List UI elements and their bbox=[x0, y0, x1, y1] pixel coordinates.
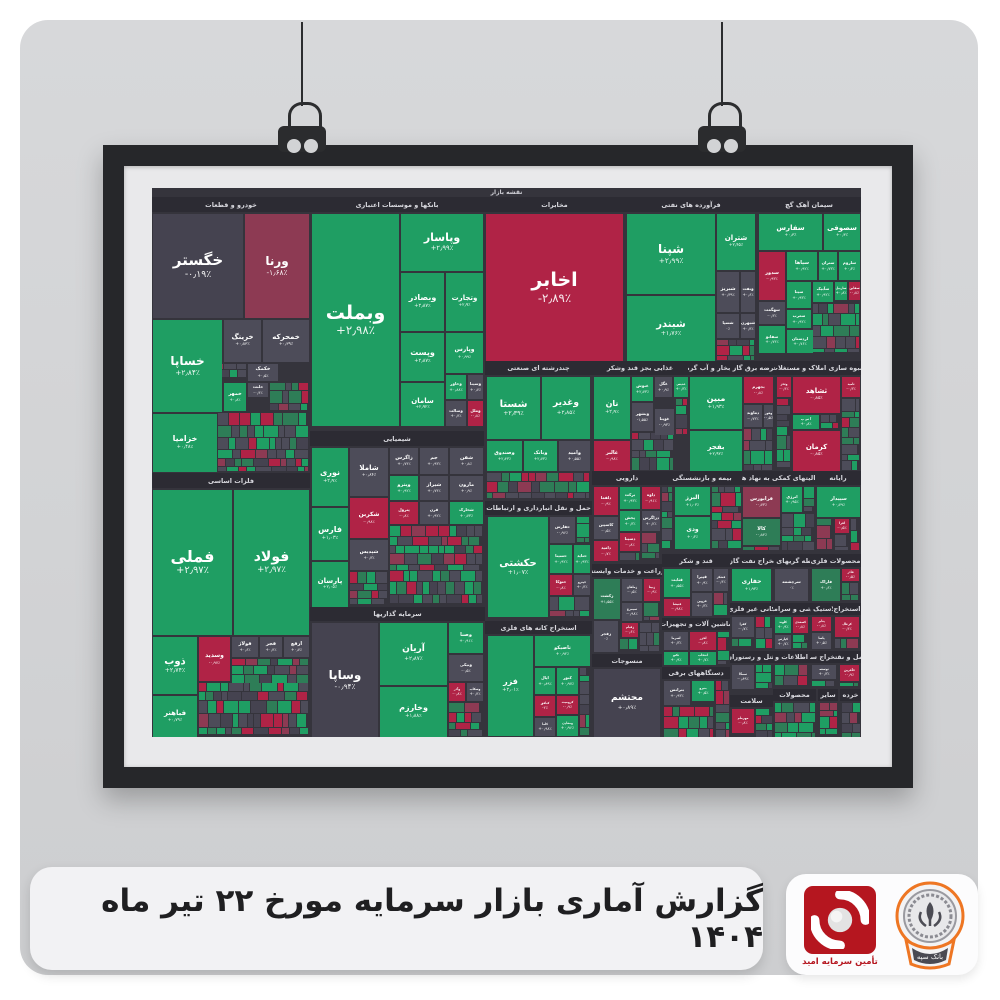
treemap-mini-tile[interactable] bbox=[414, 595, 422, 603]
treemap-mini-tile[interactable] bbox=[842, 418, 849, 427]
treemap-tile[interactable]: خمحرکه+۰٫۳۹٪ bbox=[263, 320, 309, 362]
treemap-mini-tile[interactable] bbox=[367, 572, 375, 583]
treemap-mini-tile[interactable] bbox=[793, 635, 804, 642]
treemap-mini-tile[interactable] bbox=[487, 493, 492, 498]
treemap-mini-tile[interactable] bbox=[733, 529, 741, 540]
treemap-mini-tile[interactable] bbox=[834, 326, 849, 336]
treemap-mini-tile[interactable] bbox=[834, 711, 837, 716]
treemap-tile[interactable]: اخابر-۲٫۸۹٪ bbox=[486, 214, 623, 361]
treemap-tile[interactable]: زبینا-۰٫۹٪ bbox=[644, 579, 660, 601]
treemap-mini-tile[interactable] bbox=[850, 418, 859, 427]
treemap-tile[interactable]: کبافق-۲٪ bbox=[535, 696, 555, 716]
treemap-mini-tile[interactable] bbox=[577, 538, 584, 542]
treemap-tile[interactable]: خزامیا+۰٫۴۸٪ bbox=[153, 414, 217, 472]
treemap-mini-tile[interactable] bbox=[848, 455, 859, 460]
treemap-tile[interactable]: سمگا-۰٫۸۹٪ bbox=[732, 665, 754, 689]
treemap-mini-tile[interactable] bbox=[269, 692, 284, 700]
treemap-tile[interactable]: قنیشا-۰٫۹۸٪ bbox=[664, 599, 690, 616]
treemap-tile[interactable]: شیراز+۰٫۷۴٪ bbox=[420, 476, 448, 500]
treemap-mini-tile[interactable] bbox=[756, 683, 768, 688]
treemap-mini-tile[interactable] bbox=[717, 340, 728, 345]
treemap-mini-tile[interactable] bbox=[812, 733, 815, 737]
treemap-mini-tile[interactable] bbox=[575, 597, 589, 610]
treemap-mini-tile[interactable] bbox=[239, 714, 247, 727]
treemap-mini-tile[interactable] bbox=[662, 529, 672, 540]
treemap-mini-tile[interactable] bbox=[299, 413, 306, 425]
treemap-tile[interactable]: سفانو+۰٫۷۴٪ bbox=[759, 326, 785, 353]
treemap-mini-tile[interactable] bbox=[435, 565, 447, 570]
treemap-mini-tile[interactable] bbox=[650, 458, 656, 470]
treemap-mini-tile[interactable] bbox=[301, 701, 308, 713]
treemap-mini-tile[interactable] bbox=[282, 438, 289, 449]
treemap-tile[interactable]: خساپا+۲٫۸۴٪ bbox=[153, 320, 222, 412]
treemap-tile[interactable]: وپاسار+۲٫۹۹٪ bbox=[401, 214, 483, 271]
treemap-tile[interactable]: زقیام-۰٫۶٪ bbox=[622, 623, 638, 637]
treemap-mini-tile[interactable] bbox=[302, 459, 308, 466]
treemap-mini-tile[interactable] bbox=[401, 526, 411, 536]
treemap-mini-tile[interactable] bbox=[842, 724, 852, 732]
treemap-mini-tile[interactable] bbox=[540, 482, 554, 492]
treemap-tile[interactable]: غویتا-۰٫۹۳٪ bbox=[655, 409, 674, 435]
treemap-mini-tile[interactable] bbox=[716, 730, 725, 737]
treemap-mini-tile[interactable] bbox=[226, 459, 234, 466]
treemap-mini-tile[interactable] bbox=[261, 413, 273, 425]
treemap-mini-tile[interactable] bbox=[657, 451, 670, 457]
treemap-mini-tile[interactable] bbox=[629, 639, 637, 649]
treemap-mini-tile[interactable] bbox=[794, 703, 809, 712]
treemap-mini-tile[interactable] bbox=[242, 728, 253, 734]
treemap-mini-tile[interactable] bbox=[285, 692, 296, 700]
treemap-mini-tile[interactable] bbox=[404, 571, 409, 581]
treemap-mini-tile[interactable] bbox=[242, 459, 253, 466]
treemap-mini-tile[interactable] bbox=[218, 459, 225, 466]
treemap-mini-tile[interactable] bbox=[649, 646, 659, 651]
treemap-mini-tile[interactable] bbox=[472, 713, 481, 722]
treemap-mini-tile[interactable] bbox=[248, 714, 253, 727]
treemap-mini-tile[interactable] bbox=[640, 646, 648, 651]
treemap-mini-tile[interactable] bbox=[813, 337, 826, 348]
treemap-tile[interactable]: شکربن-۰٫۹۸٪ bbox=[350, 498, 388, 538]
treemap-mini-tile[interactable] bbox=[358, 599, 371, 604]
treemap-mini-tile[interactable] bbox=[662, 493, 668, 501]
treemap-mini-tile[interactable] bbox=[756, 709, 769, 715]
treemap-mini-tile[interactable] bbox=[476, 554, 482, 564]
treemap-mini-tile[interactable] bbox=[736, 493, 741, 506]
treemap-mini-tile[interactable] bbox=[469, 595, 476, 603]
treemap-mini-tile[interactable] bbox=[286, 383, 291, 390]
treemap-mini-tile[interactable] bbox=[297, 692, 307, 700]
treemap-tile[interactable]: شپنا+۲٫۹۹٪ bbox=[627, 214, 715, 294]
treemap-mini-tile[interactable] bbox=[409, 565, 419, 570]
treemap-mini-tile[interactable] bbox=[555, 482, 568, 492]
treemap-mini-tile[interactable] bbox=[842, 703, 852, 712]
treemap-tile[interactable]: خمهر+۰٫۸٪ bbox=[224, 383, 246, 411]
treemap-mini-tile[interactable] bbox=[284, 683, 298, 691]
treemap-mini-tile[interactable] bbox=[840, 683, 853, 686]
treemap-tile[interactable]: خلنت-۰٫۴٪ bbox=[248, 383, 268, 397]
treemap-mini-tile[interactable] bbox=[278, 683, 283, 691]
treemap-mini-tile[interactable] bbox=[683, 429, 687, 434]
treemap-mini-tile[interactable] bbox=[813, 314, 822, 325]
treemap-mini-tile[interactable] bbox=[274, 714, 282, 727]
treemap-mini-tile[interactable] bbox=[756, 716, 761, 723]
treemap-mini-tile[interactable] bbox=[735, 487, 740, 492]
treemap-mini-tile[interactable] bbox=[550, 597, 558, 610]
treemap-mini-tile[interactable] bbox=[545, 493, 555, 498]
treemap-mini-tile[interactable] bbox=[441, 571, 449, 581]
treemap-mini-tile[interactable] bbox=[668, 512, 672, 517]
treemap-mini-tile[interactable] bbox=[420, 546, 428, 553]
treemap-mini-tile[interactable] bbox=[718, 632, 729, 637]
treemap-mini-tile[interactable] bbox=[782, 528, 793, 535]
treemap-mini-tile[interactable] bbox=[257, 438, 269, 449]
treemap-tile[interactable]: مارون+۰٫۹٪ bbox=[450, 476, 483, 500]
treemap-mini-tile[interactable] bbox=[642, 533, 656, 543]
treemap-tile[interactable]: جم+۰٫۹۳٪ bbox=[420, 448, 448, 474]
treemap-mini-tile[interactable] bbox=[676, 429, 682, 434]
treemap-mini-tile[interactable] bbox=[854, 438, 859, 444]
treemap-mini-tile[interactable] bbox=[397, 565, 408, 570]
treemap-mini-tile[interactable] bbox=[297, 666, 308, 674]
treemap-mini-tile[interactable] bbox=[802, 643, 807, 648]
treemap-mini-tile[interactable] bbox=[433, 595, 439, 603]
treemap-mini-tile[interactable] bbox=[293, 659, 299, 665]
treemap-mini-tile[interactable] bbox=[269, 728, 281, 734]
treemap-mini-tile[interactable] bbox=[239, 467, 246, 471]
treemap-mini-tile[interactable] bbox=[448, 537, 461, 545]
treemap-mini-tile[interactable] bbox=[268, 450, 276, 458]
treemap-mini-tile[interactable] bbox=[775, 733, 781, 737]
treemap-mini-tile[interactable] bbox=[390, 546, 395, 553]
treemap-mini-tile[interactable] bbox=[290, 728, 299, 734]
treemap-mini-tile[interactable] bbox=[835, 349, 847, 352]
treemap-tile[interactable]: زفجر۰٪ bbox=[594, 621, 618, 652]
treemap-mini-tile[interactable] bbox=[716, 705, 729, 712]
treemap-mini-tile[interactable] bbox=[732, 521, 741, 528]
treemap-mini-tile[interactable] bbox=[719, 487, 724, 492]
treemap-mini-tile[interactable] bbox=[295, 450, 308, 458]
treemap-mini-tile[interactable] bbox=[224, 364, 236, 369]
treemap-mini-tile[interactable] bbox=[461, 571, 475, 581]
treemap-mini-tile[interactable] bbox=[296, 426, 308, 437]
treemap-mini-tile[interactable] bbox=[493, 493, 505, 498]
treemap-mini-tile[interactable] bbox=[662, 518, 672, 528]
treemap-mini-tile[interactable] bbox=[775, 713, 786, 722]
treemap-mini-tile[interactable] bbox=[856, 399, 859, 411]
treemap-mini-tile[interactable] bbox=[782, 542, 787, 550]
treemap-mini-tile[interactable] bbox=[241, 450, 255, 458]
treemap-mini-tile[interactable] bbox=[580, 715, 585, 727]
treemap-tile[interactable]: وثخز-۰٫۴٪ bbox=[777, 377, 791, 397]
treemap-tile[interactable]: ساروم+۰٫۳٪ bbox=[839, 252, 860, 280]
treemap-mini-tile[interactable] bbox=[636, 553, 639, 560]
treemap-mini-tile[interactable] bbox=[729, 340, 736, 345]
treemap-mini-tile[interactable] bbox=[723, 507, 738, 512]
treemap-mini-tile[interactable] bbox=[449, 703, 464, 712]
treemap-mini-tile[interactable] bbox=[585, 538, 589, 542]
treemap-mini-tile[interactable] bbox=[632, 433, 638, 439]
treemap-mini-tile[interactable] bbox=[471, 723, 479, 729]
treemap-mini-tile[interactable] bbox=[272, 675, 287, 683]
treemap-mini-tile[interactable] bbox=[762, 465, 772, 470]
treemap-mini-tile[interactable] bbox=[642, 544, 647, 552]
treemap-mini-tile[interactable] bbox=[432, 554, 443, 564]
treemap-tile[interactable]: سپیدار+۰٫۷۹٪ bbox=[817, 487, 860, 517]
treemap-tile[interactable]: فرابورس-۰٫۷۳٪ bbox=[743, 487, 780, 517]
treemap-mini-tile[interactable] bbox=[848, 349, 859, 352]
treemap-mini-tile[interactable] bbox=[465, 703, 479, 712]
treemap-mini-tile[interactable] bbox=[784, 450, 790, 461]
treemap-mini-tile[interactable] bbox=[405, 554, 417, 564]
treemap-mini-tile[interactable] bbox=[244, 683, 249, 691]
treemap-mini-tile[interactable] bbox=[794, 528, 801, 535]
treemap-mini-tile[interactable] bbox=[712, 513, 721, 520]
treemap-mini-tile[interactable] bbox=[376, 572, 387, 583]
treemap-tile[interactable]: وخارزم+۱٫۸۸٪ bbox=[380, 687, 447, 737]
treemap-mini-tile[interactable] bbox=[650, 617, 659, 620]
treemap-mini-tile[interactable] bbox=[465, 582, 473, 594]
treemap-mini-tile[interactable] bbox=[648, 544, 659, 552]
treemap-mini-tile[interactable] bbox=[237, 364, 246, 369]
treemap-tile[interactable]: دسینا-۰٫۸٪ bbox=[620, 533, 640, 551]
treemap-tile[interactable]: افرا-۰٫۵٪ bbox=[835, 519, 849, 533]
treemap-mini-tile[interactable] bbox=[240, 426, 247, 437]
treemap-mini-tile[interactable] bbox=[476, 571, 482, 581]
treemap-mini-tile[interactable] bbox=[754, 465, 761, 470]
treemap-mini-tile[interactable] bbox=[793, 643, 801, 648]
treemap-mini-tile[interactable] bbox=[717, 356, 727, 360]
treemap-mini-tile[interactable] bbox=[405, 546, 419, 553]
treemap-mini-tile[interactable] bbox=[769, 547, 779, 550]
treemap-mini-tile[interactable] bbox=[823, 314, 828, 325]
treemap-mini-tile[interactable] bbox=[449, 723, 455, 729]
treemap-tile[interactable]: غگل+۰٫۹٪ bbox=[655, 377, 672, 397]
treemap-mini-tile[interactable] bbox=[397, 582, 406, 594]
treemap-mini-tile[interactable] bbox=[297, 438, 308, 449]
treemap-mini-tile[interactable] bbox=[217, 728, 225, 734]
treemap-mini-tile[interactable] bbox=[246, 659, 257, 665]
treemap-mini-tile[interactable] bbox=[662, 502, 672, 511]
treemap-mini-tile[interactable] bbox=[532, 482, 539, 492]
treemap-mini-tile[interactable] bbox=[743, 547, 754, 550]
treemap-mini-tile[interactable] bbox=[410, 571, 417, 581]
treemap-mini-tile[interactable] bbox=[199, 714, 208, 727]
treemap-mini-tile[interactable] bbox=[258, 692, 268, 700]
treemap-mini-tile[interactable] bbox=[232, 426, 239, 437]
treemap-mini-tile[interactable] bbox=[847, 639, 858, 648]
treemap-mini-tile[interactable] bbox=[712, 507, 722, 512]
treemap-tile[interactable]: ومعادن+۰٫۹۶٪ bbox=[557, 716, 578, 736]
treemap-mini-tile[interactable] bbox=[806, 514, 814, 527]
treemap-mini-tile[interactable] bbox=[247, 467, 255, 471]
treemap-mini-tile[interactable] bbox=[438, 582, 445, 594]
treemap-mini-tile[interactable] bbox=[455, 582, 464, 594]
treemap-mini-tile[interactable] bbox=[442, 537, 447, 545]
treemap-mini-tile[interactable] bbox=[620, 553, 635, 560]
treemap-mini-tile[interactable] bbox=[657, 458, 669, 470]
treemap-tile[interactable]: حآفرین-۰٫۹٪ bbox=[840, 665, 859, 681]
treemap-mini-tile[interactable] bbox=[240, 413, 250, 425]
treemap-mini-tile[interactable] bbox=[286, 450, 294, 458]
treemap-tile[interactable]: محتشم+۰٫۸۹٪ bbox=[594, 669, 660, 737]
treemap-tile[interactable]: ستران+۰٫۷۳٪ bbox=[819, 252, 837, 280]
treemap-mini-tile[interactable] bbox=[777, 415, 787, 420]
treemap-mini-tile[interactable] bbox=[290, 438, 296, 449]
treemap-tile[interactable]: ورنا-۱٫۶۸٪ bbox=[245, 214, 309, 318]
treemap-mini-tile[interactable] bbox=[819, 304, 827, 313]
treemap-mini-tile[interactable] bbox=[226, 728, 231, 734]
treemap-mini-tile[interactable] bbox=[734, 513, 741, 520]
treemap-mini-tile[interactable] bbox=[464, 565, 479, 570]
treemap-mini-tile[interactable] bbox=[430, 582, 437, 594]
treemap-tile[interactable]: دامید-۰٫۷٪ bbox=[594, 541, 618, 561]
treemap-mini-tile[interactable] bbox=[712, 487, 718, 492]
treemap-mini-tile[interactable] bbox=[842, 412, 854, 417]
treemap-tile[interactable]: برکت+۰٫۹۳٪ bbox=[620, 487, 640, 509]
treemap-mini-tile[interactable] bbox=[224, 701, 238, 713]
treemap-mini-tile[interactable] bbox=[264, 426, 278, 437]
treemap-mini-tile[interactable] bbox=[756, 673, 771, 682]
treemap-mini-tile[interactable] bbox=[418, 571, 432, 581]
treemap-tile[interactable]: حفاری+۱٫۹۳٪ bbox=[732, 569, 771, 601]
treemap-mini-tile[interactable] bbox=[842, 428, 848, 437]
treemap-mini-tile[interactable] bbox=[825, 349, 834, 352]
treemap-mini-tile[interactable] bbox=[390, 526, 400, 536]
treemap-tile[interactable]: کنور+۰٫۹۷٪ bbox=[557, 668, 578, 694]
treemap-mini-tile[interactable] bbox=[662, 541, 670, 548]
treemap-mini-tile[interactable] bbox=[586, 715, 589, 727]
treemap-mini-tile[interactable] bbox=[654, 633, 659, 645]
treemap-mini-tile[interactable] bbox=[455, 554, 466, 564]
treemap-mini-tile[interactable] bbox=[728, 356, 743, 360]
treemap-tile[interactable]: پتایر-۰٫۸٪ bbox=[812, 617, 831, 631]
treemap-tile[interactable]: شبهرن+۰٫۴٪ bbox=[741, 314, 755, 338]
treemap-mini-tile[interactable] bbox=[775, 723, 787, 732]
treemap-mini-tile[interactable] bbox=[580, 682, 589, 694]
treemap-mini-tile[interactable] bbox=[708, 717, 713, 728]
treemap-tile[interactable]: غدیس+۰٫۳٪ bbox=[674, 377, 688, 397]
treemap-mini-tile[interactable] bbox=[230, 370, 237, 377]
treemap-tile[interactable]: فجر+۰٫۴٪ bbox=[260, 637, 282, 657]
treemap-mini-tile[interactable] bbox=[683, 399, 687, 405]
treemap-mini-tile[interactable] bbox=[640, 633, 646, 645]
treemap-mini-tile[interactable] bbox=[256, 467, 271, 471]
treemap-mini-tile[interactable] bbox=[577, 482, 589, 492]
treemap-mini-tile[interactable] bbox=[828, 304, 833, 313]
treemap-mini-tile[interactable] bbox=[506, 493, 518, 498]
treemap-mini-tile[interactable] bbox=[821, 415, 829, 422]
treemap-tile[interactable]: وصندوق+۲٫۴۳٪ bbox=[487, 441, 522, 471]
treemap-mini-tile[interactable] bbox=[784, 676, 797, 685]
treemap-mini-tile[interactable] bbox=[743, 346, 749, 355]
treemap-tile[interactable]: حکشتی+۱٫۰۷٪ bbox=[488, 517, 548, 617]
treemap-mini-tile[interactable] bbox=[229, 438, 235, 449]
treemap-mini-tile[interactable] bbox=[559, 473, 573, 481]
treemap-tile[interactable]: فباهنر+۰٫۷۹٪ bbox=[153, 696, 197, 737]
treemap-tile[interactable]: شفن+۰٫۸٪ bbox=[450, 448, 483, 474]
treemap-mini-tile[interactable] bbox=[717, 346, 729, 355]
treemap-tile[interactable]: شبریز+۰٫۳۹٪ bbox=[717, 272, 739, 312]
treemap-mini-tile[interactable] bbox=[849, 428, 859, 437]
treemap-tile[interactable]: ثشاهد-۰٫۸۵٪ bbox=[793, 377, 840, 413]
treemap-mini-tile[interactable] bbox=[632, 451, 639, 457]
treemap-mini-tile[interactable] bbox=[750, 340, 754, 345]
treemap-tile[interactable]: انتخاب+۰٫۷٪ bbox=[690, 652, 716, 665]
treemap-mini-tile[interactable] bbox=[850, 326, 859, 336]
treemap-mini-tile[interactable] bbox=[679, 729, 686, 737]
treemap-mini-tile[interactable] bbox=[762, 716, 772, 723]
treemap-mini-tile[interactable] bbox=[199, 728, 207, 734]
treemap-tile[interactable]: توسعه+۰٫۳٪ bbox=[812, 665, 836, 679]
treemap-mini-tile[interactable] bbox=[199, 683, 206, 691]
treemap-tile[interactable]: وسالت+۰٫۴٪ bbox=[446, 401, 466, 426]
treemap-tile[interactable]: لسرما+۰٫۳٪ bbox=[664, 632, 688, 650]
treemap-mini-tile[interactable] bbox=[580, 728, 589, 735]
treemap-tile[interactable]: البرز+۱٫۰۳٪ bbox=[675, 487, 710, 515]
treemap-mini-tile[interactable] bbox=[439, 526, 449, 536]
treemap-mini-tile[interactable] bbox=[842, 733, 851, 737]
treemap-mini-tile[interactable] bbox=[222, 692, 227, 700]
treemap-mini-tile[interactable] bbox=[580, 705, 589, 714]
treemap-tile[interactable]: وصنا+۰٫۹۱٪ bbox=[449, 623, 483, 653]
treemap-mini-tile[interactable] bbox=[407, 582, 416, 594]
treemap-mini-tile[interactable] bbox=[644, 603, 658, 616]
treemap-mini-tile[interactable] bbox=[446, 582, 454, 594]
treemap-mini-tile[interactable] bbox=[455, 546, 465, 553]
treemap-tile[interactable]: پارسان+۲٫۰۵٪ bbox=[312, 562, 348, 607]
treemap-tile[interactable]: وتجارت+۲٫۹٪ bbox=[446, 273, 483, 331]
treemap-mini-tile[interactable] bbox=[842, 583, 849, 594]
treemap-mini-tile[interactable] bbox=[522, 473, 528, 481]
treemap-mini-tile[interactable] bbox=[276, 438, 281, 449]
treemap-mini-tile[interactable] bbox=[279, 404, 288, 410]
treemap-mini-tile[interactable] bbox=[372, 599, 384, 604]
treemap-mini-tile[interactable] bbox=[577, 524, 589, 537]
treemap-mini-tile[interactable] bbox=[509, 482, 517, 492]
treemap-mini-tile[interactable] bbox=[292, 383, 298, 390]
treemap-mini-tile[interactable] bbox=[726, 529, 732, 540]
treemap-mini-tile[interactable] bbox=[726, 723, 729, 729]
treemap-tile[interactable]: سهگمت-۰٫۳٪ bbox=[759, 302, 785, 324]
treemap-mini-tile[interactable] bbox=[547, 473, 558, 481]
treemap-mini-tile[interactable] bbox=[261, 714, 273, 727]
treemap-mini-tile[interactable] bbox=[827, 539, 832, 549]
treemap-tile[interactable]: سدور-۰٫۹۳٪ bbox=[759, 252, 785, 300]
treemap-tile[interactable]: سآبیک+۰٫۹۲٪ bbox=[813, 282, 833, 302]
treemap-mini-tile[interactable] bbox=[251, 413, 260, 425]
treemap-mini-tile[interactable] bbox=[620, 639, 628, 649]
treemap-mini-tile[interactable] bbox=[254, 666, 267, 674]
treemap-mini-tile[interactable] bbox=[842, 399, 855, 411]
treemap-mini-tile[interactable] bbox=[267, 701, 277, 713]
treemap-mini-tile[interactable] bbox=[255, 426, 263, 437]
treemap-mini-tile[interactable] bbox=[529, 473, 535, 481]
treemap-mini-tile[interactable] bbox=[272, 467, 286, 471]
treemap-mini-tile[interactable] bbox=[358, 591, 371, 598]
treemap-mini-tile[interactable] bbox=[805, 536, 811, 541]
treemap-mini-tile[interactable] bbox=[750, 346, 754, 355]
treemap-mini-tile[interactable] bbox=[288, 675, 296, 683]
treemap-mini-tile[interactable] bbox=[270, 404, 278, 410]
treemap-mini-tile[interactable] bbox=[199, 701, 207, 713]
treemap-tile[interactable]: شخارک+۰٫۷۳٪ bbox=[450, 502, 483, 524]
treemap-mini-tile[interactable] bbox=[487, 482, 497, 492]
treemap-mini-tile[interactable] bbox=[283, 714, 288, 727]
treemap-tile[interactable]: حسینا+۰٫۹۲٪ bbox=[550, 545, 572, 573]
treemap-mini-tile[interactable] bbox=[842, 595, 850, 600]
treemap-tile[interactable]: کالا-۰٫۸۴٪ bbox=[743, 519, 780, 545]
treemap-mini-tile[interactable] bbox=[817, 519, 831, 525]
